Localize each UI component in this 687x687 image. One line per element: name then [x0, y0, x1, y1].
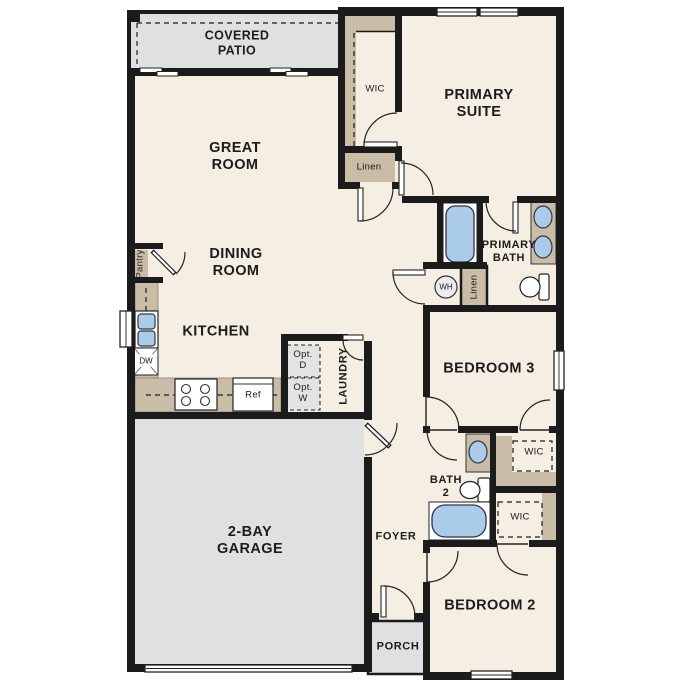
floor-plan-drawing	[0, 0, 687, 687]
linen-top-label: Linen	[357, 161, 382, 172]
garage-label: 2-BAY GARAGE	[217, 524, 283, 558]
covered-patio-label: COVERED PATIO	[205, 28, 270, 58]
bedroom2-window	[471, 671, 512, 679]
kitchen-sink	[135, 311, 158, 348]
bath2-sink	[469, 441, 487, 463]
wic-bedroom3-label: WIC	[524, 446, 543, 457]
wic-bedroom2-shelf	[542, 493, 556, 540]
primary-suite-label: PRIMARY SUITE	[444, 87, 513, 121]
kitchen-window	[120, 311, 132, 347]
water-heater-label: WH	[439, 282, 452, 291]
refrigerator-label: Ref	[245, 389, 261, 400]
bedroom3-window	[554, 351, 564, 390]
optional-washer-label: Opt. W	[293, 382, 312, 404]
bathtub	[429, 502, 490, 540]
bedroom2-label: BEDROOM 2	[444, 597, 535, 614]
porch-label: PORCH	[377, 641, 420, 654]
linen-hall-label: Linen	[468, 275, 479, 300]
great-room-label: GREAT ROOM	[209, 140, 261, 174]
dishwasher-label: DW	[139, 356, 152, 365]
primary-suite-window	[437, 8, 518, 16]
wic-bedroom2-label: WIC	[510, 511, 529, 522]
kitchen-label: KITCHEN	[182, 323, 249, 340]
pantry-label: Pantry	[134, 249, 145, 278]
primary-bath-label: PRIMARY BATH	[482, 239, 537, 265]
bath2-label: BATH 2	[430, 474, 462, 500]
foyer-label: FOYER	[376, 531, 417, 544]
bedroom3-label: BEDROOM 3	[443, 360, 534, 377]
stove	[175, 379, 217, 410]
wic-bedroom3-shelf	[495, 436, 512, 488]
floor-plan: COVERED PATIO GREAT ROOM DINING ROOM KIT…	[0, 0, 687, 687]
optional-dryer-label: Opt. D	[293, 349, 312, 371]
dining-room-label: DINING ROOM	[209, 246, 262, 280]
shower	[443, 203, 477, 265]
garage-door	[145, 665, 352, 672]
laundry-label: LAUNDRY	[338, 347, 351, 405]
wic-top-label: WIC	[365, 83, 384, 94]
